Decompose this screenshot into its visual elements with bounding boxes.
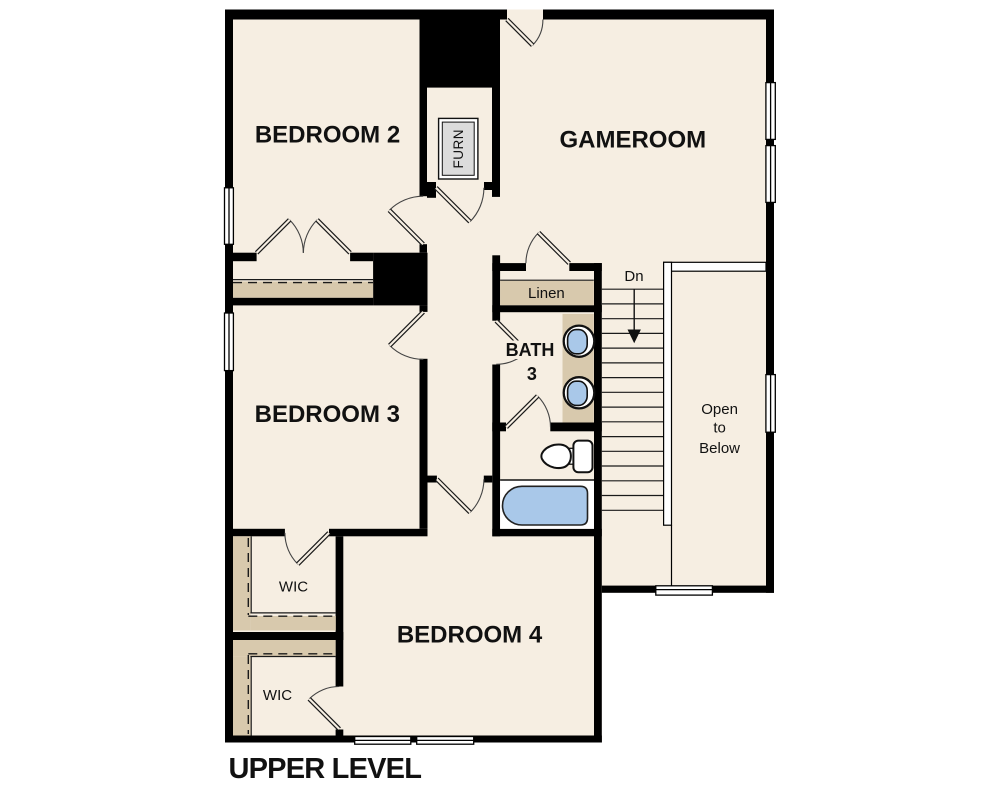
svg-text:Linen: Linen xyxy=(528,285,565,302)
svg-text:3: 3 xyxy=(527,364,537,384)
svg-text:Dn: Dn xyxy=(624,268,643,285)
svg-text:BEDROOM 3: BEDROOM 3 xyxy=(255,401,400,428)
svg-text:to: to xyxy=(713,419,726,436)
svg-text:WIC: WIC xyxy=(263,687,292,704)
svg-text:Open: Open xyxy=(701,401,738,418)
svg-text:Below: Below xyxy=(699,440,740,457)
svg-text:GAMEROOM: GAMEROOM xyxy=(559,127,706,154)
svg-text:WIC: WIC xyxy=(279,579,308,596)
svg-text:BATH: BATH xyxy=(506,340,555,360)
svg-text:FURN: FURN xyxy=(451,129,466,169)
svg-text:BEDROOM 2: BEDROOM 2 xyxy=(255,122,400,149)
svg-text:BEDROOM 4: BEDROOM 4 xyxy=(397,622,543,649)
svg-text:UPPER LEVEL: UPPER LEVEL xyxy=(229,753,422,785)
